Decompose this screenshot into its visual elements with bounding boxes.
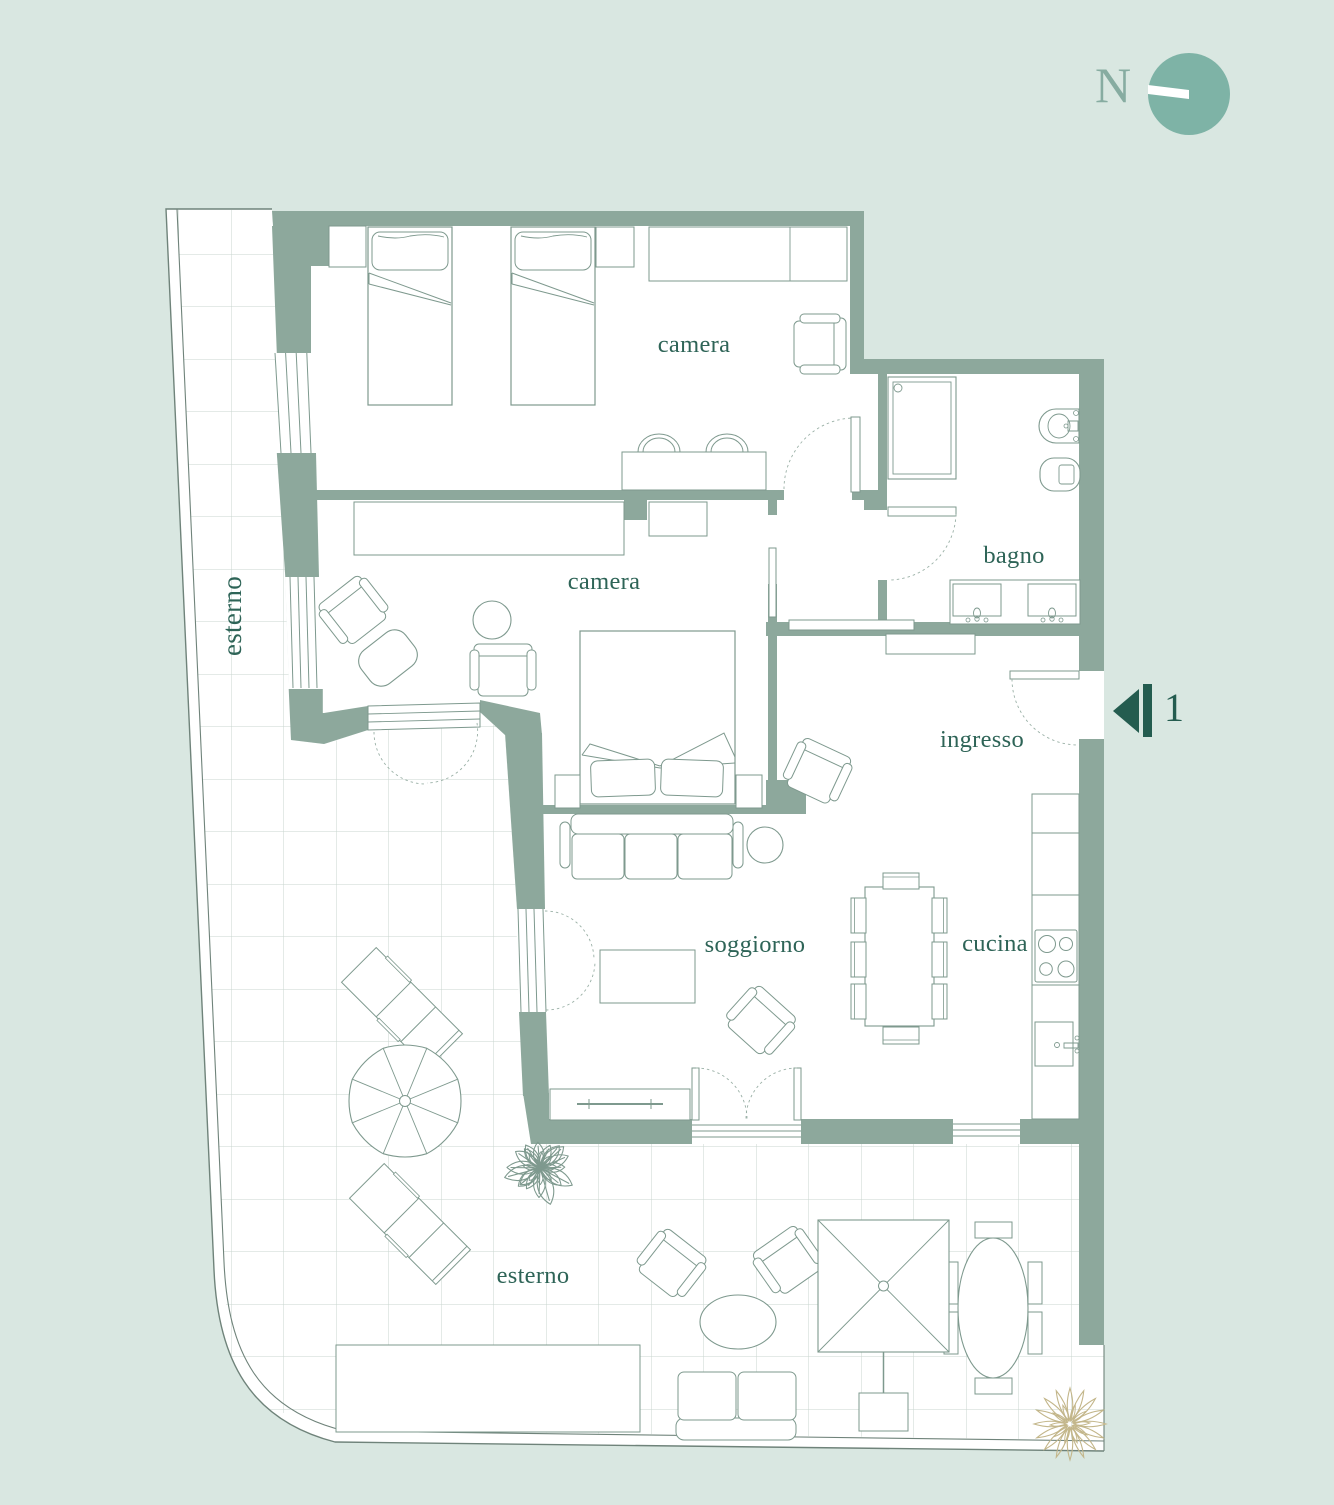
- svg-text:soggiorno: soggiorno: [705, 931, 806, 958]
- svg-text:esterno: esterno: [217, 576, 247, 656]
- svg-text:cucina: cucina: [962, 930, 1028, 957]
- svg-text:esterno: esterno: [497, 1262, 570, 1289]
- svg-text:camera: camera: [658, 331, 731, 358]
- svg-text:bagno: bagno: [983, 542, 1044, 569]
- svg-text:ingresso: ingresso: [940, 726, 1024, 753]
- svg-text:1: 1: [1164, 685, 1184, 730]
- svg-text:N: N: [1095, 57, 1131, 113]
- svg-text:camera: camera: [568, 568, 641, 595]
